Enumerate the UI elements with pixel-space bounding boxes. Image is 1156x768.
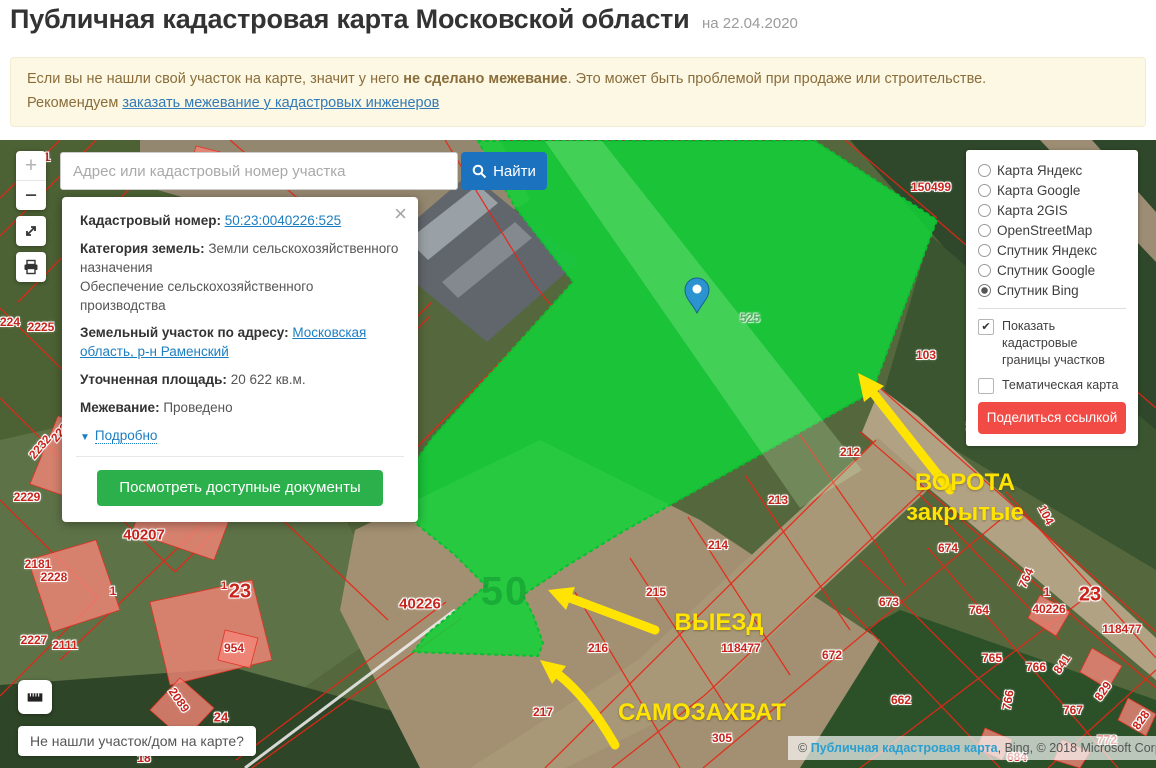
radio-icon xyxy=(978,264,991,277)
layers-panel: Карта ЯндексКарта GoogleКарта 2GISOpenSt… xyxy=(966,150,1138,446)
map-canvas[interactable]: 1224222522322237218722332229402072181222… xyxy=(0,140,1156,768)
share-link-button[interactable]: Поделиться ссылкой xyxy=(978,402,1126,434)
radio-icon xyxy=(978,204,991,217)
zoom-out-button[interactable]: − xyxy=(16,181,46,210)
area-row: Уточненная площадь: 20 622 кв.м. xyxy=(80,371,400,390)
zoom-control: + − xyxy=(16,151,46,210)
layer-option-label: OpenStreetMap xyxy=(997,223,1092,238)
fullscreen-button[interactable] xyxy=(16,216,46,246)
layer-option-label: Карта 2GIS xyxy=(997,203,1068,218)
checkbox-unchecked-icon xyxy=(978,378,994,394)
expand-arrows-icon xyxy=(23,223,39,239)
search-bar: Найти xyxy=(60,152,547,190)
layer-options: Карта ЯндексКарта GoogleКарта 2GISOpenSt… xyxy=(978,160,1126,300)
order-survey-link[interactable]: заказать межевание у кадастровых инженер… xyxy=(122,95,439,111)
notice-bold: не сделано межевание xyxy=(403,71,567,87)
layer-option-label: Карта Яндекс xyxy=(997,163,1082,178)
land-category-row: Категория земель: Земли сельскохозяйстве… xyxy=(80,240,400,316)
layer-option-label: Спутник Bing xyxy=(997,283,1079,298)
search-input[interactable] xyxy=(60,152,458,190)
annotation-gate-line2: закрытые xyxy=(906,499,1024,527)
survey-row: Межевание: Проведено xyxy=(80,399,400,418)
annotation-squat: САМОЗАХВАТ xyxy=(618,699,786,727)
attribution-link[interactable]: Публичная кадастровая карта xyxy=(811,741,998,755)
layer-option[interactable]: Карта Яндекс xyxy=(978,160,1126,180)
layer-option-label: Спутник Яндекс xyxy=(997,243,1097,258)
print-button[interactable] xyxy=(16,252,46,282)
layer-option[interactable]: Спутник Google xyxy=(978,260,1126,280)
page-header: Публичная кадастровая карта Московской о… xyxy=(10,4,798,35)
radio-selected-icon xyxy=(978,284,991,297)
not-found-button[interactable]: Не нашли участок/дом на карте? xyxy=(18,726,256,756)
search-icon xyxy=(472,164,487,179)
layer-option-label: Карта Google xyxy=(997,183,1080,198)
annotation-gate-line1: ВОРОТА xyxy=(915,469,1015,497)
cadastral-number-row: Кадастровый номер: 50:23:0040226:525 xyxy=(80,212,400,231)
cadastral-borders-checkbox[interactable]: Показать кадастровые границы участков xyxy=(978,318,1126,369)
radio-icon xyxy=(978,184,991,197)
radio-icon xyxy=(978,164,991,177)
layer-option[interactable]: Спутник Bing xyxy=(978,280,1126,300)
find-button[interactable]: Найти xyxy=(461,152,547,190)
cadastral-number-link[interactable]: 50:23:0040226:525 xyxy=(225,213,341,228)
layer-option[interactable]: Карта Google xyxy=(978,180,1126,200)
page-date: на 22.04.2020 xyxy=(702,15,798,32)
map-attribution: © Публичная кадастровая карта, Bing, © 2… xyxy=(788,736,1156,760)
layer-option-label: Спутник Google xyxy=(997,263,1095,278)
annotation-exit: ВЫЕЗД xyxy=(675,609,764,637)
checkbox-checked-icon xyxy=(978,319,994,335)
caret-down-icon: ▼ xyxy=(80,432,90,443)
survey-notice: Если вы не нашли свой участок на карте, … xyxy=(10,57,1146,127)
thematic-map-checkbox[interactable]: Тематическая карта xyxy=(978,377,1126,394)
layer-option[interactable]: Спутник Яндекс xyxy=(978,240,1126,260)
layer-option[interactable]: OpenStreetMap xyxy=(978,220,1126,240)
notice-line2: Рекомендуем заказать межевание у кадастр… xyxy=(27,92,1129,116)
layer-option[interactable]: Карта 2GIS xyxy=(978,200,1126,220)
close-icon[interactable]: × xyxy=(394,203,407,225)
page-title: Публичная кадастровая карта Московской о… xyxy=(10,4,690,34)
notice-line1: Если вы не нашли свой участок на карте, … xyxy=(27,68,1129,92)
radio-icon xyxy=(978,244,991,257)
parcel-info-popup: × Кадастровый номер: 50:23:0040226:525 К… xyxy=(62,197,418,522)
view-documents-button[interactable]: Посмотреть доступные документы xyxy=(97,470,382,506)
divider xyxy=(978,308,1126,309)
ruler-icon xyxy=(24,686,46,708)
printer-icon xyxy=(22,258,40,276)
details-toggle[interactable]: ▼Подробно xyxy=(80,427,400,446)
zoom-in-button[interactable]: + xyxy=(16,151,46,181)
radio-icon xyxy=(978,224,991,237)
address-row: Земельный участок по адресу: Московская … xyxy=(80,324,400,362)
measure-button[interactable] xyxy=(18,680,52,714)
